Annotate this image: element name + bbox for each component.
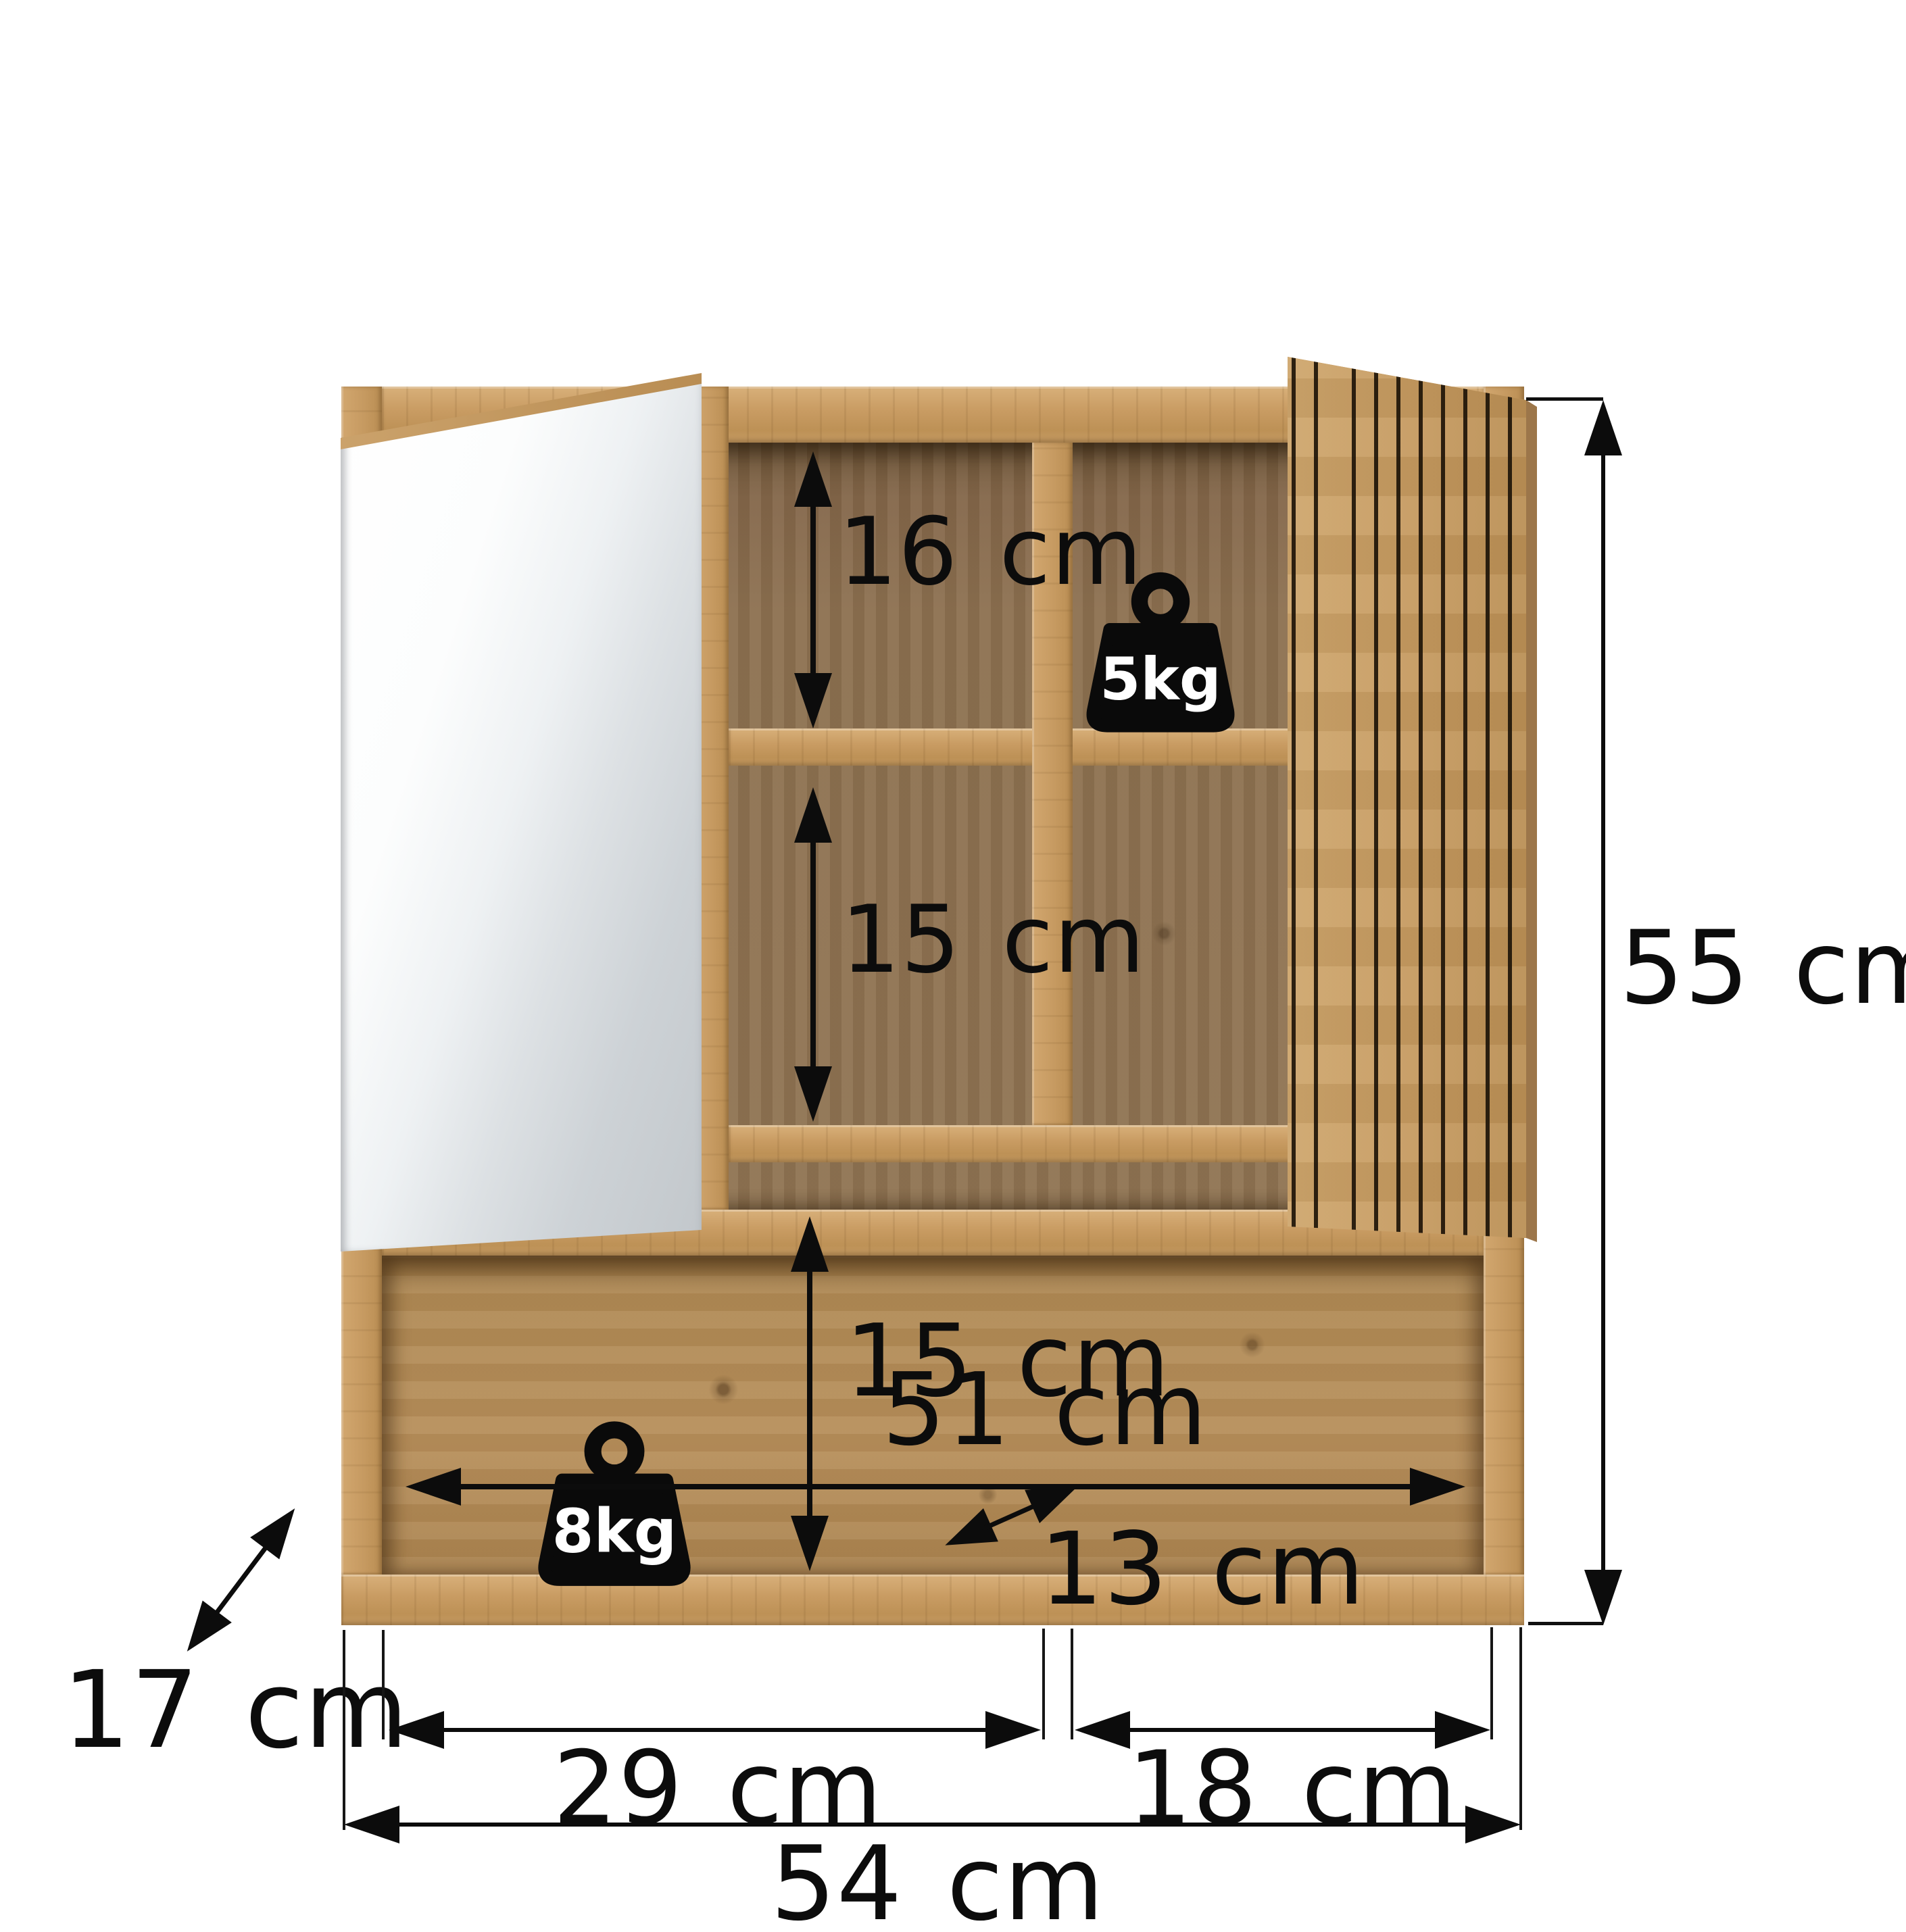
- slat-door: [1288, 357, 1526, 1241]
- extension-line-mid-left: [1042, 1629, 1045, 1739]
- dim-label-15cm-middle: 15 cm: [841, 893, 1146, 987]
- slat-door-side-edge: [1526, 400, 1537, 1242]
- weight-8kg-icon: 8kg: [536, 1419, 693, 1593]
- weight-5kg-label: 5kg: [1100, 646, 1221, 714]
- extension-line-left-inner: [382, 1630, 385, 1739]
- extension-line-right-inner: [1490, 1627, 1493, 1739]
- weight-ring: [1140, 580, 1181, 622]
- dim-label-54cm: 54 cm: [771, 1833, 1104, 1932]
- diagram-canvas: 5kg 8kg 16 cm 15 cm 15 cm 51 cm 13 cm: [0, 0, 1906, 1932]
- weight-ring: [593, 1430, 636, 1473]
- extension-line-left-outer: [343, 1630, 345, 1830]
- dim-label-55cm: 55 cm: [1619, 918, 1906, 1019]
- dim-arrow-17cm: [172, 1497, 310, 1662]
- dim-label-51cm: 51 cm: [882, 1360, 1208, 1460]
- weight-8kg-label: 8kg: [552, 1496, 677, 1566]
- dim-label-17cm: 17 cm: [62, 1657, 409, 1764]
- dim-label-13cm: 13 cm: [1040, 1519, 1365, 1619]
- extension-line-mid-right: [1071, 1629, 1073, 1739]
- dim-label-16cm: 16 cm: [838, 505, 1143, 599]
- mirror-door: [341, 373, 702, 1256]
- extension-line-right-outer: [1519, 1627, 1522, 1830]
